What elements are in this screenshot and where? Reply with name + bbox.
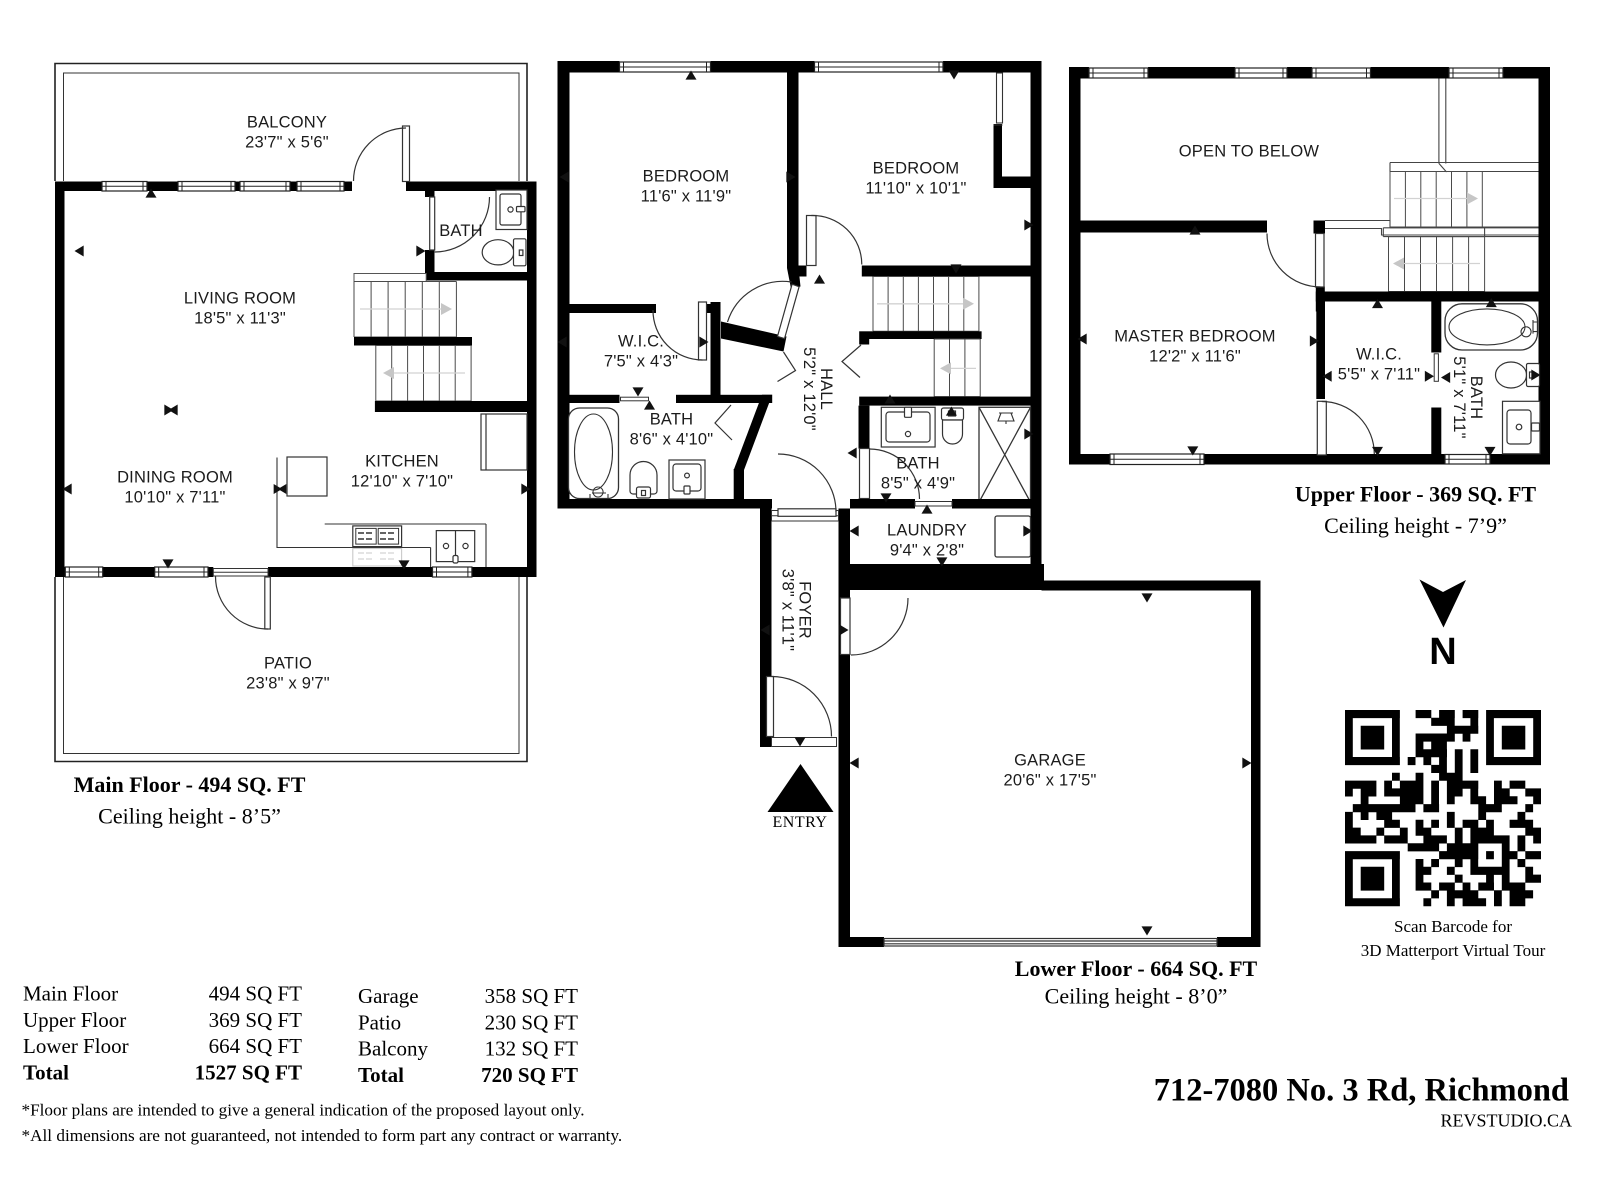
svg-text:KITCHEN: KITCHEN xyxy=(365,452,439,470)
svg-text:5'5" x 7'11": 5'5" x 7'11" xyxy=(1338,365,1421,383)
svg-text:BATH: BATH xyxy=(650,410,694,428)
svg-text:W.I.C.: W.I.C. xyxy=(1356,345,1402,363)
svg-text:LAUNDRY: LAUNDRY xyxy=(887,521,967,539)
svg-text:Patio: Patio xyxy=(358,1010,401,1034)
svg-text:7'5" x 4'3": 7'5" x 4'3" xyxy=(604,352,678,370)
svg-text:ENTRY: ENTRY xyxy=(773,814,828,831)
svg-text:230 SQ FT: 230 SQ FT xyxy=(485,1010,579,1034)
svg-text:12'10" x 7'10": 12'10" x 7'10" xyxy=(351,472,453,490)
svg-text:369 SQ FT: 369 SQ FT xyxy=(209,1008,303,1032)
svg-text:12'2" x 11'6": 12'2" x 11'6" xyxy=(1149,347,1241,365)
svg-text:20'6" x 17'5": 20'6" x 17'5" xyxy=(1003,771,1096,789)
svg-text:PATIO: PATIO xyxy=(264,654,312,672)
svg-text:REVSTUDIO.CA: REVSTUDIO.CA xyxy=(1440,1111,1572,1131)
svg-text:*Floor plans are intended to g: *Floor plans are intended to give a gene… xyxy=(22,1101,585,1120)
svg-text:5'1" x 7'11": 5'1" x 7'11" xyxy=(1450,356,1468,439)
svg-text:3'8" x 11'1": 3'8" x 11'1" xyxy=(779,569,797,652)
svg-text:LIVING ROOM: LIVING ROOM xyxy=(184,289,296,307)
svg-text:DINING ROOM: DINING ROOM xyxy=(117,468,233,486)
svg-text:BALCONY: BALCONY xyxy=(247,113,327,131)
svg-text:8'6" x 4'10": 8'6" x 4'10" xyxy=(630,430,714,448)
svg-text:Main Floor - 494 SQ. FT: Main Floor - 494 SQ. FT xyxy=(74,772,306,797)
svg-text:9'4" x 2'8": 9'4" x 2'8" xyxy=(890,541,964,559)
svg-text:Scan Barcode for: Scan Barcode for xyxy=(1394,917,1512,936)
svg-text:HALL: HALL xyxy=(817,368,835,410)
svg-text:Total: Total xyxy=(358,1063,404,1087)
svg-text:8'5" x 4'9": 8'5" x 4'9" xyxy=(881,474,955,492)
svg-text:Lower Floor: Lower Floor xyxy=(23,1034,129,1058)
svg-text:Lower Floor - 664 SQ. FT: Lower Floor - 664 SQ. FT xyxy=(1015,956,1258,981)
svg-text:1527 SQ FT: 1527 SQ FT xyxy=(195,1060,302,1084)
svg-text:BATH: BATH xyxy=(439,222,483,240)
svg-text:Ceiling height - 8’0”: Ceiling height - 8’0” xyxy=(1045,984,1228,1009)
svg-text:23'8" x 9'7": 23'8" x 9'7" xyxy=(246,674,330,692)
svg-text:BATH: BATH xyxy=(896,454,940,472)
svg-text:Garage: Garage xyxy=(358,984,419,1008)
svg-text:Total: Total xyxy=(23,1060,69,1084)
svg-text:Upper Floor: Upper Floor xyxy=(23,1008,126,1032)
svg-text:358 SQ FT: 358 SQ FT xyxy=(485,984,579,1008)
svg-text:W.I.C.: W.I.C. xyxy=(618,332,664,350)
svg-text:3D Matterport Virtual Tour: 3D Matterport Virtual Tour xyxy=(1361,941,1546,960)
svg-text:664 SQ FT: 664 SQ FT xyxy=(209,1034,303,1058)
svg-text:5'2" x 12'0": 5'2" x 12'0" xyxy=(800,347,818,431)
svg-text:MASTER BEDROOM: MASTER BEDROOM xyxy=(1114,327,1275,345)
svg-text:18'5" x 11'3": 18'5" x 11'3" xyxy=(194,309,286,327)
svg-text:BATH: BATH xyxy=(1467,376,1485,420)
svg-text:FOYER: FOYER xyxy=(796,581,814,639)
svg-text:Ceiling height - 8’5”: Ceiling height - 8’5” xyxy=(98,804,281,829)
svg-text:494 SQ FT: 494 SQ FT xyxy=(209,982,303,1006)
svg-text:720 SQ FT: 720 SQ FT xyxy=(481,1063,578,1087)
svg-text:712-7080 No. 3 Rd, Richmond: 712-7080 No. 3 Rd, Richmond xyxy=(1154,1073,1569,1109)
svg-text:Ceiling height - 7’9”: Ceiling height - 7’9” xyxy=(1324,513,1507,538)
svg-text:Upper Floor - 369 SQ. FT: Upper Floor - 369 SQ. FT xyxy=(1295,482,1537,507)
svg-text:BEDROOM: BEDROOM xyxy=(643,167,730,185)
svg-text:11'6" x 11'9": 11'6" x 11'9" xyxy=(641,187,732,205)
svg-text:GARAGE: GARAGE xyxy=(1014,751,1086,769)
svg-text:Balcony: Balcony xyxy=(358,1037,428,1061)
svg-text:OPEN TO BELOW: OPEN TO BELOW xyxy=(1179,142,1320,160)
svg-text:10'10" x 7'11": 10'10" x 7'11" xyxy=(124,488,225,506)
svg-text:Main Floor: Main Floor xyxy=(23,982,118,1006)
svg-text:132 SQ FT: 132 SQ FT xyxy=(485,1037,579,1061)
svg-text:*All dimensions are not guaran: *All dimensions are not guaranteed, not … xyxy=(22,1126,623,1145)
svg-text:BEDROOM: BEDROOM xyxy=(873,159,960,177)
svg-text:N: N xyxy=(1429,631,1456,673)
svg-text:23'7" x 5'6": 23'7" x 5'6" xyxy=(245,133,329,151)
svg-text:11'10" x 10'1": 11'10" x 10'1" xyxy=(865,179,966,197)
